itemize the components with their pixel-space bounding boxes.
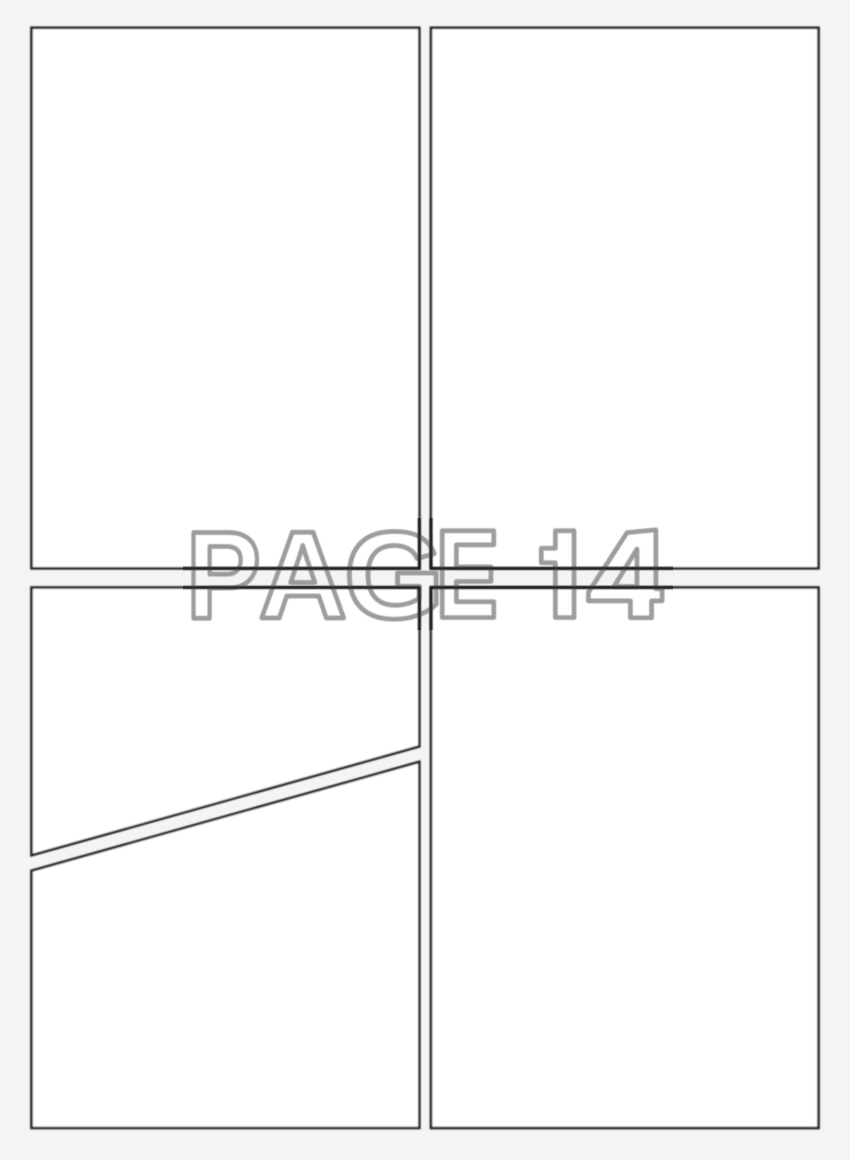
- svg-text:G: G: [344, 507, 444, 645]
- svg-text:P: P: [186, 507, 261, 645]
- svg-text:A: A: [259, 507, 347, 645]
